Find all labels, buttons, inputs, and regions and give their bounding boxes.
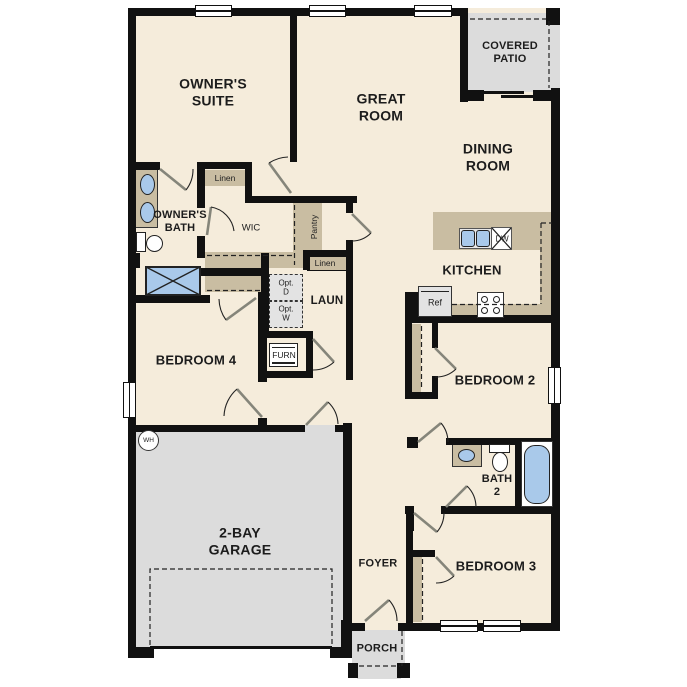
- water-heater-icon: WH: [138, 430, 159, 451]
- room-label-wic: WIC: [242, 222, 260, 233]
- wall: [343, 423, 352, 623]
- bath2-sink-icon: [458, 449, 475, 462]
- wall: [306, 338, 313, 371]
- patio-slider-door: [482, 91, 524, 94]
- bedroom2-closet-shelf: [411, 324, 421, 392]
- label-pantry: Pantry: [309, 215, 319, 240]
- wic-shelf-bottom: [205, 252, 307, 268]
- label-dishwasher: DW: [495, 234, 508, 243]
- wall: [258, 292, 267, 382]
- room-label-bath-2: BATH 2: [482, 473, 513, 499]
- wall: [198, 268, 268, 276]
- shower-icon: [145, 266, 201, 296]
- room-label-great-room: GREAT ROOM: [357, 90, 406, 123]
- wall: [397, 663, 410, 678]
- wall: [258, 418, 267, 432]
- burner-icon: [493, 307, 500, 314]
- wall: [346, 240, 353, 380]
- toilet-icon: [492, 452, 508, 472]
- wall: [551, 88, 560, 631]
- room-label-covered-patio: COVERED PATIO: [482, 40, 538, 66]
- wall: [405, 392, 438, 399]
- label-refrigerator: Ref: [428, 298, 442, 309]
- wall: [460, 90, 484, 101]
- window: [483, 620, 521, 632]
- wall: [261, 371, 313, 378]
- wall: [408, 550, 435, 557]
- wall: [128, 253, 140, 268]
- wall: [335, 425, 352, 432]
- window: [309, 5, 346, 17]
- bathtub-icon: [524, 445, 550, 504]
- label-linen-wic: Linen: [215, 173, 236, 183]
- room-label-bedroom-4: BEDROOM 4: [156, 352, 237, 367]
- room-label-owners-bath: OWNER'S BATH: [153, 209, 207, 235]
- wall: [348, 663, 358, 678]
- wall: [128, 295, 210, 303]
- hall-closet-shelf: [205, 276, 262, 292]
- wall: [261, 331, 313, 338]
- wall: [546, 8, 560, 25]
- wall: [398, 623, 560, 631]
- burner-icon: [481, 296, 488, 303]
- room-label-kitchen: KITCHEN: [442, 262, 501, 277]
- wall: [128, 162, 160, 170]
- room-label-owners-suite: OWNER'S SUITE: [179, 75, 247, 108]
- window: [123, 382, 136, 418]
- wall: [197, 236, 205, 258]
- burner-icon: [481, 307, 488, 314]
- window: [195, 5, 232, 17]
- room-label-bedroom-3: BEDROOM 3: [456, 558, 537, 573]
- water-heater-label: WH: [143, 437, 154, 445]
- wall: [405, 322, 412, 399]
- wall: [346, 196, 353, 213]
- label-furnace: FURN: [272, 350, 296, 360]
- wall: [128, 647, 154, 658]
- wall: [352, 623, 365, 631]
- wall: [407, 437, 418, 448]
- wall: [128, 8, 136, 658]
- wall: [303, 250, 310, 270]
- wall: [533, 90, 560, 101]
- stove-icon: [477, 292, 504, 318]
- patio-slider-door: [501, 95, 534, 98]
- window: [414, 5, 452, 17]
- wall: [341, 620, 352, 650]
- kitchen-sink-basin: [476, 230, 490, 247]
- room-label-garage: 2-BAY GARAGE: [209, 524, 272, 557]
- burner-icon: [493, 296, 500, 303]
- room-label-bedroom-2: BEDROOM 2: [455, 372, 536, 387]
- bath-sink-icon: [140, 174, 155, 195]
- window: [440, 620, 478, 632]
- room-label-dining-room: DINING ROOM: [463, 140, 513, 173]
- label-opt-dryer: Opt. D: [278, 279, 293, 298]
- room-label-foyer: FOYER: [359, 558, 398, 571]
- toilet-icon: [146, 235, 163, 252]
- label-opt-washer: Opt. W: [278, 305, 293, 324]
- wall: [460, 8, 468, 102]
- label-linen-hall: Linen: [315, 258, 336, 268]
- garage-door-line: [150, 646, 332, 649]
- floor-plan: WH: [0, 0, 687, 687]
- wall: [432, 322, 438, 348]
- wall: [406, 514, 413, 625]
- window: [548, 367, 561, 404]
- kitchen-sink-basin: [461, 230, 475, 247]
- wall: [290, 16, 297, 162]
- toilet-icon: [136, 232, 146, 252]
- room-label-porch: PORCH: [357, 643, 398, 656]
- wall: [197, 162, 252, 169]
- porch-step: [357, 672, 401, 679]
- room-label-laundry: LAUN: [311, 295, 344, 309]
- wall: [441, 506, 553, 514]
